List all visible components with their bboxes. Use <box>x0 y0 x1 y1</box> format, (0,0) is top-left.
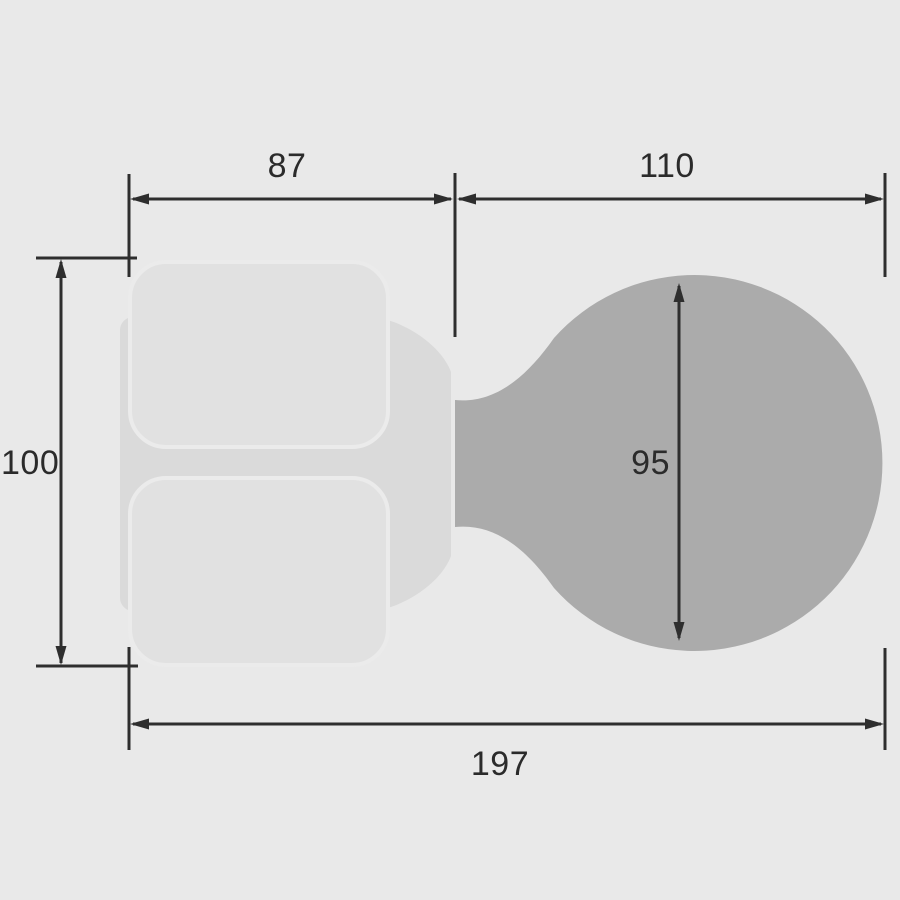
label-left-section-width: 87 <box>268 147 307 185</box>
rose-plate-top <box>130 262 388 447</box>
label-overall-width: 197 <box>471 745 529 783</box>
label-knob-diameter: 95 <box>631 444 670 482</box>
dimension-diagram: 87 110 100 95 197 <box>0 0 900 900</box>
rose-plate-bottom <box>130 478 388 665</box>
label-plate-height: 100 <box>1 444 59 482</box>
label-right-section-width: 110 <box>639 147 695 185</box>
